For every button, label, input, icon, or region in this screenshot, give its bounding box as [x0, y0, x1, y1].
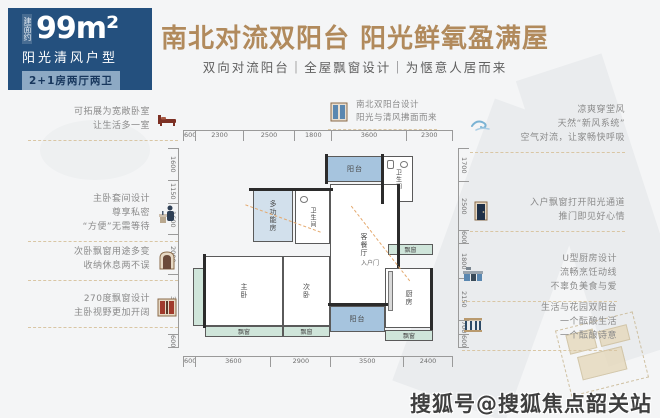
- double-balcony-icon: [328, 101, 350, 123]
- wind-icon: [470, 114, 492, 136]
- unit-type-name: 阳光清风户型: [22, 47, 152, 66]
- dim-label: 600: [184, 131, 195, 139]
- dim-label: 3600: [332, 131, 405, 139]
- callout-270-baywindow: 270度飘窗设计 主卧视野更加开阔: [28, 293, 178, 328]
- dim-label: 600: [184, 357, 195, 365]
- callout-line: 主卧套间设计: [83, 193, 150, 207]
- room-label: 飘窗: [300, 327, 312, 336]
- bay-window: 飘窗: [205, 326, 283, 337]
- room-multi: 多功能房: [253, 190, 293, 242]
- dims-bottom: 600 3600 2900 3500 2400: [183, 356, 453, 367]
- unit-info-box: 建面约 99m² 阳光清风户型 2+1房两厅两卫: [8, 8, 152, 90]
- callout-line: 入户飘窗打开阳光通道: [498, 197, 625, 211]
- page-title: 南北对流双阳台 阳光鲜氧盈满屋: [155, 18, 555, 55]
- room-label: 飘窗: [404, 245, 416, 254]
- layout-badge: 2+1房两厅两卫: [22, 71, 120, 90]
- callout-line: U型厨房设计: [490, 253, 617, 267]
- callout-line: 空气对流，让家畅快呼吸: [498, 132, 625, 146]
- corner-window-icon: [156, 296, 178, 318]
- dim-label: 2400: [404, 357, 452, 365]
- callout-line: 不辜负美食与爱: [490, 281, 617, 295]
- callout-u-kitchen: U型厨房设计 流畅烹饪动线 不辜负美食与爱: [462, 253, 617, 302]
- room-second: 次卧: [283, 256, 330, 326]
- callout-text: 270度飘窗设计 主卧视野更加开阔: [74, 293, 150, 321]
- dim-label: 2900: [271, 357, 330, 365]
- callout-text: U型厨房设计 流畅烹饪动线 不辜负美食与爱: [490, 253, 617, 295]
- room-label: 次卧: [302, 283, 312, 299]
- callout-line: 次卧飘窗用途多变: [74, 246, 150, 260]
- callout-text: 入户飘窗打开阳光通道 推门即见好心情: [498, 197, 625, 225]
- room-kitchen: 厨房: [385, 268, 433, 328]
- callout-line: 南北双阳台设计: [356, 99, 437, 112]
- bay-window: 飘窗: [385, 330, 433, 341]
- callout-entry-baywindow: 入户飘窗打开阳光通道 推门即见好心情: [470, 197, 625, 232]
- callout-line: 270度飘窗设计: [74, 293, 150, 307]
- bay-window: 飘窗: [388, 244, 433, 255]
- callout-text: 主卧套间设计 尊享私密 “方便”无需等待: [83, 193, 150, 235]
- callout-text: 生活与花园双阳台 一个酝酿生活 一个酝酿诗意: [490, 302, 617, 344]
- callout-line: 生活与花园双阳台: [490, 302, 617, 316]
- callout-line: 天然“新风系统”: [498, 118, 625, 132]
- dim-label: 2300: [407, 131, 452, 139]
- dims-top: 600 2300 2500 1800 3600 2300: [183, 130, 453, 141]
- callout-line: 推门即见好心情: [498, 211, 625, 225]
- callout-line: 流畅烹饪动线: [490, 267, 617, 281]
- dim-label: 1800: [295, 131, 331, 139]
- dim-label: 600: [460, 231, 468, 243]
- callout-line: 收纳休息两不误: [74, 260, 150, 274]
- callout-line: 一个酝酿诗意: [490, 330, 617, 344]
- dim-label: 1600: [169, 156, 177, 173]
- callout-double-life-balcony: 生活与花园双阳台 一个酝酿生活 一个酝酿诗意: [462, 302, 617, 351]
- area-row: 建面约 99m²: [22, 14, 152, 44]
- dim-label: 1700: [460, 157, 468, 174]
- entry-door-label: 入户门: [361, 258, 379, 267]
- callout-line: 一个酝酿生活: [490, 316, 617, 330]
- washbasin-icon: [156, 203, 178, 225]
- callout-line: 让生活多一室: [74, 120, 150, 134]
- room-label: 阳台: [350, 314, 366, 324]
- callout-line: 尊享私密: [83, 207, 150, 221]
- area-value: 99m²: [36, 14, 118, 44]
- callout-cross-ventilation: 凉爽穿堂风 天然“新风系统” 空气对流，让家畅快呼吸: [470, 104, 625, 153]
- callout-line: 凉爽穿堂风: [498, 104, 625, 118]
- dim-label: 3500: [331, 357, 403, 365]
- callout-text: 可拓展为宽敞卧室 让生活多一室: [74, 106, 150, 134]
- bay-window: 飘窗: [283, 326, 330, 337]
- callout-text: 凉爽穿堂风 天然“新风系统” 空气对流，让家畅快呼吸: [498, 104, 625, 146]
- callout-master-suite: 主卧套间设计 尊享私密 “方便”无需等待: [28, 193, 178, 242]
- dim-label: 600: [169, 335, 177, 347]
- dim-label: 3600: [196, 357, 270, 365]
- area-prefix-tag: 建面约: [22, 14, 32, 44]
- callout-text: 南北双阳台设计 阳光与清风拂面而来: [356, 99, 437, 125]
- callout-line: 可拓展为宽敞卧室: [74, 106, 150, 120]
- callout-double-balcony: 南北双阳台设计 阳光与清风拂面而来: [328, 99, 437, 130]
- dim-label: 2500: [244, 131, 295, 139]
- dim-label: 2300: [196, 131, 242, 139]
- room-label: 飘窗: [403, 331, 415, 340]
- dim-label: 2500: [460, 198, 468, 215]
- poster: 建面约 99m² 阳光清风户型 2+1房两厅两卫 南北对流双阳台 阳光鲜氧盈满屋…: [0, 0, 660, 418]
- floorplan: 阳台 卫生间 多功能房 卫生间 客餐厅 主卧 次卧 厨房 阳台: [183, 148, 453, 348]
- bay-window-icon: [156, 249, 178, 271]
- balcony-icon: [462, 312, 484, 334]
- callout-text: 次卧飘窗用途多变 收纳休息两不误: [74, 246, 150, 274]
- callout-expand-bedroom: 可拓展为宽敞卧室 让生活多一室: [28, 106, 178, 141]
- room-label: 卫生间: [308, 207, 317, 228]
- callout-line: 阳光与清风拂面而来: [356, 112, 437, 125]
- room-bath-center: 卫生间: [295, 190, 330, 244]
- room-label: 阳台: [347, 164, 363, 174]
- room-label: 飘窗: [238, 327, 250, 336]
- callout-line: “方便”无需等待: [83, 221, 150, 235]
- room-south-balcony: 阳台: [330, 306, 385, 332]
- door-icon: [470, 200, 492, 222]
- room-label: 厨房: [404, 290, 414, 306]
- room-north-balcony: 阳台: [327, 156, 383, 182]
- callout-line: 主卧视野更加开阔: [74, 307, 150, 321]
- room-label: 客餐厅: [359, 233, 369, 257]
- room-master: 主卧: [205, 256, 283, 326]
- page-subtitle: 双向对流阳台｜全屋飘窗设计｜为惬意人居而来: [155, 57, 555, 76]
- kitchen-icon: [462, 263, 484, 285]
- room-label: 主卧: [239, 283, 249, 299]
- bed-icon: [156, 109, 178, 131]
- watermark: 搜狐号@搜狐焦点韶关站: [410, 388, 652, 418]
- callout-second-baywindow: 次卧飘窗用途多变 收纳休息两不误: [28, 246, 178, 281]
